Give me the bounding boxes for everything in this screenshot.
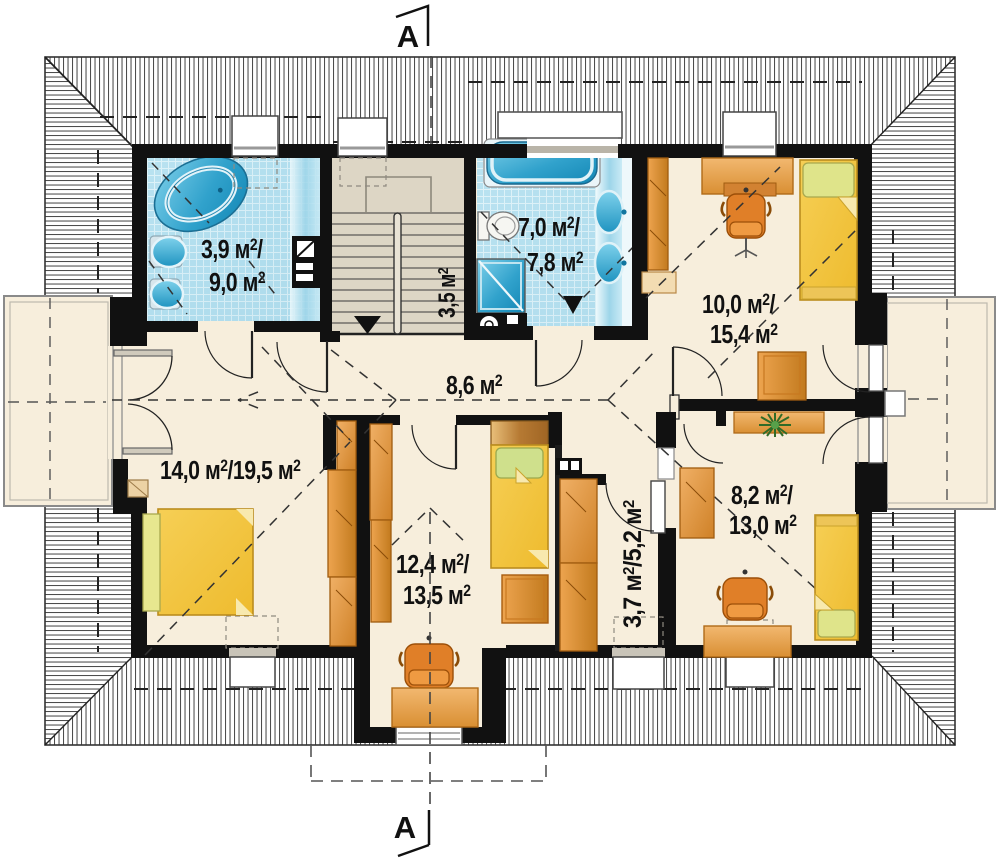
svg-text:9,0 м2: 9,0 м2 [209,268,266,298]
svg-text:A: A [394,810,416,845]
svg-text:A: A [397,19,419,54]
svg-text:13,0 м2: 13,0 м2 [729,511,797,541]
svg-text:13,5 м2: 13,5 м2 [403,581,471,611]
svg-text:14,0 м2/19,5 м2: 14,0 м2/19,5 м2 [160,456,301,486]
svg-text:3,5 м2: 3,5 м2 [433,267,461,318]
svg-text:7,8 м2: 7,8 м2 [527,248,584,278]
svg-text:8,6 м2: 8,6 м2 [446,371,503,401]
svg-text:3,7 м2/5,2 м2: 3,7 м2/5,2 м2 [619,500,647,628]
svg-text:15,4 м2: 15,4 м2 [710,320,778,350]
